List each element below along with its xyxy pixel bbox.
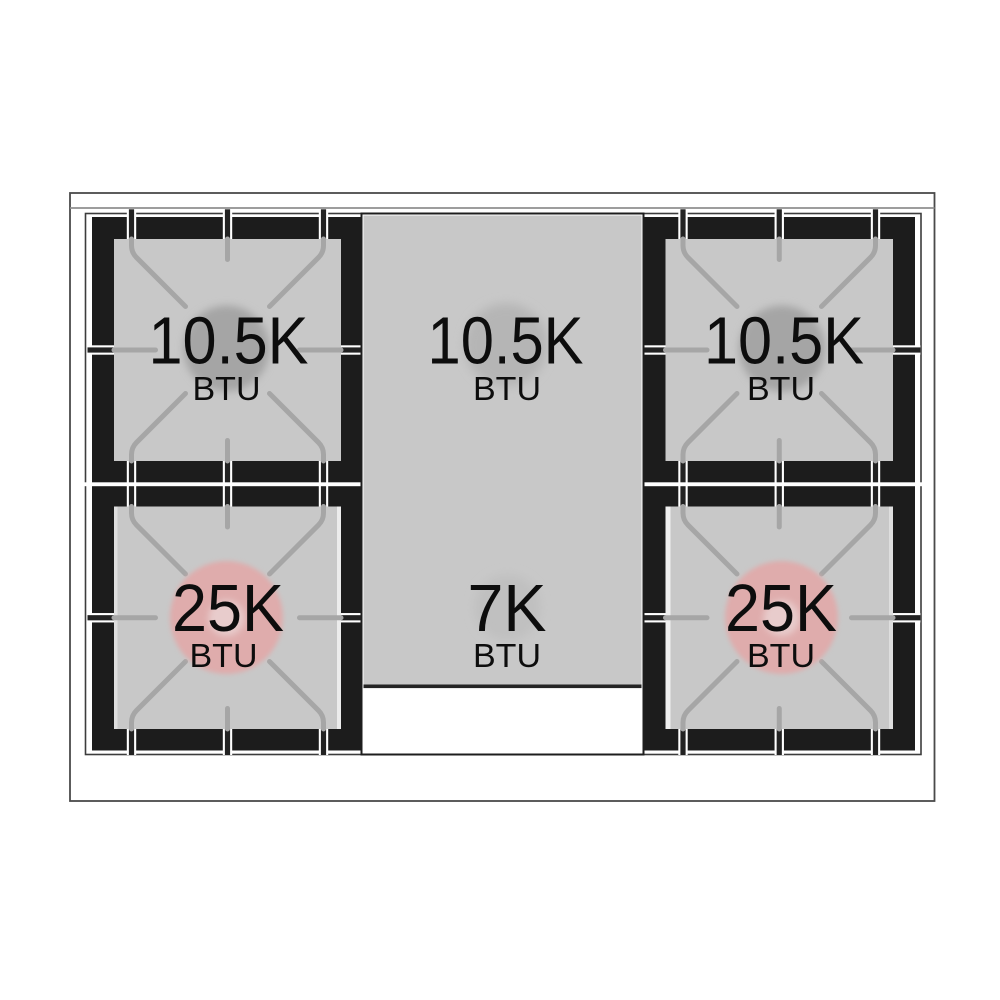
svg-text:25K: 25K: [172, 572, 284, 646]
svg-text:BTU: BTU: [190, 637, 258, 674]
svg-text:BTU: BTU: [473, 370, 541, 407]
svg-text:BTU: BTU: [473, 637, 541, 674]
svg-text:25K: 25K: [725, 572, 837, 646]
svg-text:10.5K: 10.5K: [149, 304, 309, 378]
svg-text:7K: 7K: [468, 572, 547, 646]
svg-text:BTU: BTU: [193, 370, 261, 407]
svg-text:10.5K: 10.5K: [428, 304, 584, 378]
svg-text:BTU: BTU: [747, 637, 815, 674]
svg-text:10.5K: 10.5K: [704, 304, 864, 378]
svg-text:BTU: BTU: [747, 370, 815, 407]
